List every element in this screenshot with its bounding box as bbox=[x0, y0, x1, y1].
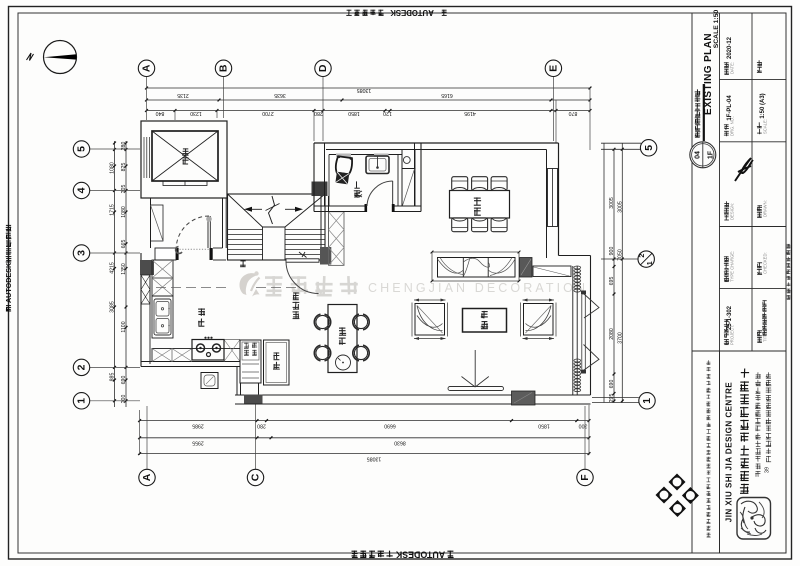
svg-text:1230: 1230 bbox=[190, 110, 202, 116]
svg-text:1: 1 bbox=[645, 261, 654, 265]
svg-text:5: 5 bbox=[643, 145, 655, 151]
svg-text:2: 2 bbox=[76, 364, 88, 370]
svg-text:4195: 4195 bbox=[464, 110, 476, 116]
svg-text:3: 3 bbox=[76, 250, 88, 256]
svg-text:13085: 13085 bbox=[367, 456, 382, 462]
svg-text:04: 04 bbox=[695, 151, 702, 159]
svg-text:E: E bbox=[548, 65, 560, 72]
svg-text:AUTODESK: AUTODESK bbox=[4, 262, 13, 303]
svg-text:1: 1 bbox=[641, 398, 653, 404]
svg-text:3005: 3005 bbox=[617, 201, 623, 213]
svg-text:690: 690 bbox=[609, 380, 615, 389]
svg-text:TYPE CHARGE:: TYPE CHARGE: bbox=[730, 251, 735, 282]
svg-text:900: 900 bbox=[609, 247, 615, 256]
svg-text:5: 5 bbox=[76, 146, 88, 152]
svg-text:A: A bbox=[141, 473, 153, 481]
svg-text:1080: 1080 bbox=[110, 162, 116, 174]
svg-text:25-1-302: 25-1-302 bbox=[727, 305, 733, 330]
svg-text:AUTODESK: AUTODESK bbox=[390, 8, 434, 17]
svg-text:665: 665 bbox=[121, 240, 127, 249]
svg-text:D: D bbox=[317, 64, 329, 72]
svg-text:1715: 1715 bbox=[110, 204, 116, 216]
svg-text:2020-12: 2020-12 bbox=[727, 36, 733, 59]
svg-text:1F: 1F bbox=[707, 150, 714, 159]
svg-text:300: 300 bbox=[579, 423, 588, 429]
svg-text:885: 885 bbox=[110, 373, 116, 382]
svg-text:DESIGN:: DESIGN: bbox=[730, 203, 735, 220]
svg-text:825: 825 bbox=[121, 163, 127, 172]
svg-text:200: 200 bbox=[121, 395, 127, 404]
svg-text:8630: 8630 bbox=[394, 440, 406, 446]
svg-text:4: 4 bbox=[76, 187, 88, 193]
svg-text:CHENGJIAN DECORATION: CHENGJIAN DECORATION bbox=[368, 281, 588, 295]
svg-text:2700: 2700 bbox=[262, 110, 274, 116]
svg-text:A: A bbox=[141, 64, 153, 72]
svg-text:CHECKED:: CHECKED: bbox=[763, 252, 768, 274]
svg-text:2985: 2985 bbox=[192, 423, 204, 429]
svg-text:F: F bbox=[579, 474, 591, 481]
svg-text:2135: 2135 bbox=[177, 92, 189, 98]
svg-text:B: B bbox=[218, 64, 230, 72]
svg-text:DATE:: DATE: bbox=[730, 62, 735, 74]
svg-text:1080: 1080 bbox=[121, 206, 127, 218]
svg-text:4215: 4215 bbox=[110, 262, 116, 274]
svg-text:6165: 6165 bbox=[441, 92, 453, 98]
svg-text:280: 280 bbox=[314, 110, 323, 116]
svg-text:6690: 6690 bbox=[384, 423, 396, 429]
svg-text:3085: 3085 bbox=[110, 301, 116, 313]
svg-text:1850: 1850 bbox=[538, 423, 550, 429]
svg-text:13085: 13085 bbox=[357, 87, 372, 93]
svg-text:3700: 3700 bbox=[617, 332, 623, 344]
svg-text:AUTODESK: AUTODESK bbox=[395, 549, 445, 559]
svg-text:2955: 2955 bbox=[192, 440, 204, 446]
svg-text:1F-PL-04: 1F-PL-04 bbox=[727, 95, 733, 121]
svg-text:1100: 1100 bbox=[121, 321, 127, 332]
svg-text:1:50 (A3): 1:50 (A3) bbox=[760, 93, 766, 118]
svg-text:205: 205 bbox=[121, 185, 127, 194]
svg-text:2080: 2080 bbox=[609, 328, 615, 340]
svg-text:SCALE:: SCALE: bbox=[763, 119, 768, 134]
svg-text:JIN XIU SHI JIA DESIGN CENTRE: JIN XIU SHI JIA DESIGN CENTRE bbox=[725, 382, 734, 523]
svg-text:690: 690 bbox=[121, 376, 127, 385]
svg-text:1350: 1350 bbox=[121, 263, 127, 275]
svg-text:295: 295 bbox=[609, 394, 615, 403]
svg-text:DRAWN:: DRAWN: bbox=[763, 200, 768, 217]
svg-text:695: 695 bbox=[609, 277, 615, 286]
svg-text:120: 120 bbox=[383, 110, 392, 116]
svg-text:3635: 3635 bbox=[274, 92, 286, 98]
svg-text:C: C bbox=[250, 473, 262, 481]
svg-text:1: 1 bbox=[76, 398, 88, 404]
svg-text:840: 840 bbox=[156, 110, 165, 116]
svg-text:870: 870 bbox=[569, 110, 578, 116]
svg-text:1850: 1850 bbox=[348, 110, 360, 116]
svg-text:3005: 3005 bbox=[609, 197, 615, 209]
svg-text:TITLE:: TITLE: bbox=[763, 329, 768, 342]
svg-text:280: 280 bbox=[257, 423, 266, 429]
svg-text:39: 39 bbox=[765, 467, 771, 473]
svg-text:2: 2 bbox=[637, 254, 646, 258]
